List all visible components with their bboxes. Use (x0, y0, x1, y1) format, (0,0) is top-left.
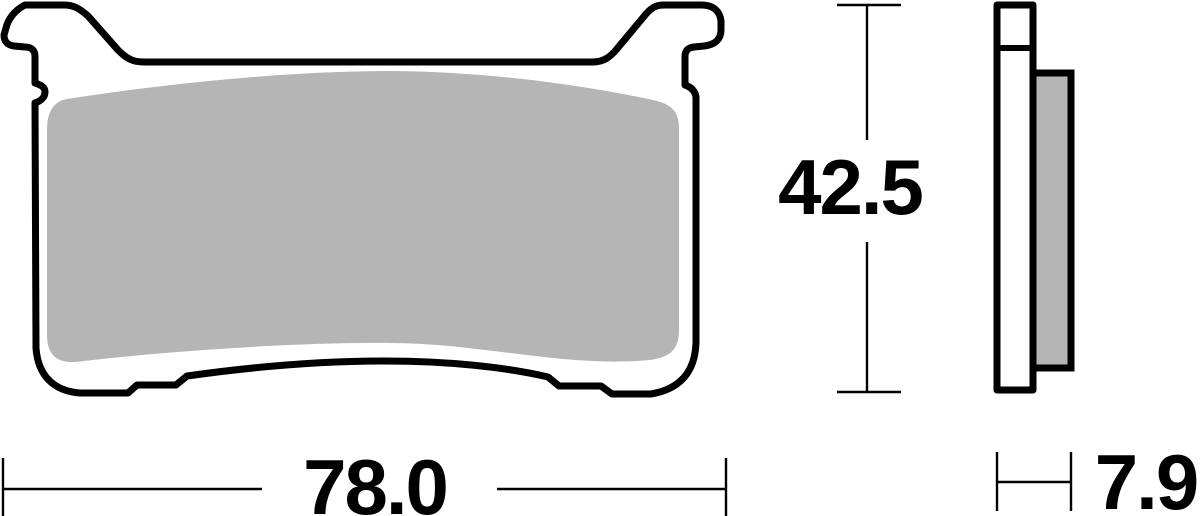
side-friction-material (1033, 73, 1071, 368)
height-dimension-label: 42.5 (690, 145, 1010, 229)
front-view (4, 5, 721, 394)
drawing-canvas: 78.0 42.5 7.9 (0, 0, 1200, 516)
technical-drawing (0, 0, 1200, 516)
width-dimension-label: 78.0 (215, 445, 535, 516)
friction-material (47, 71, 679, 362)
thickness-dimension-label: 7.9 (986, 440, 1200, 516)
